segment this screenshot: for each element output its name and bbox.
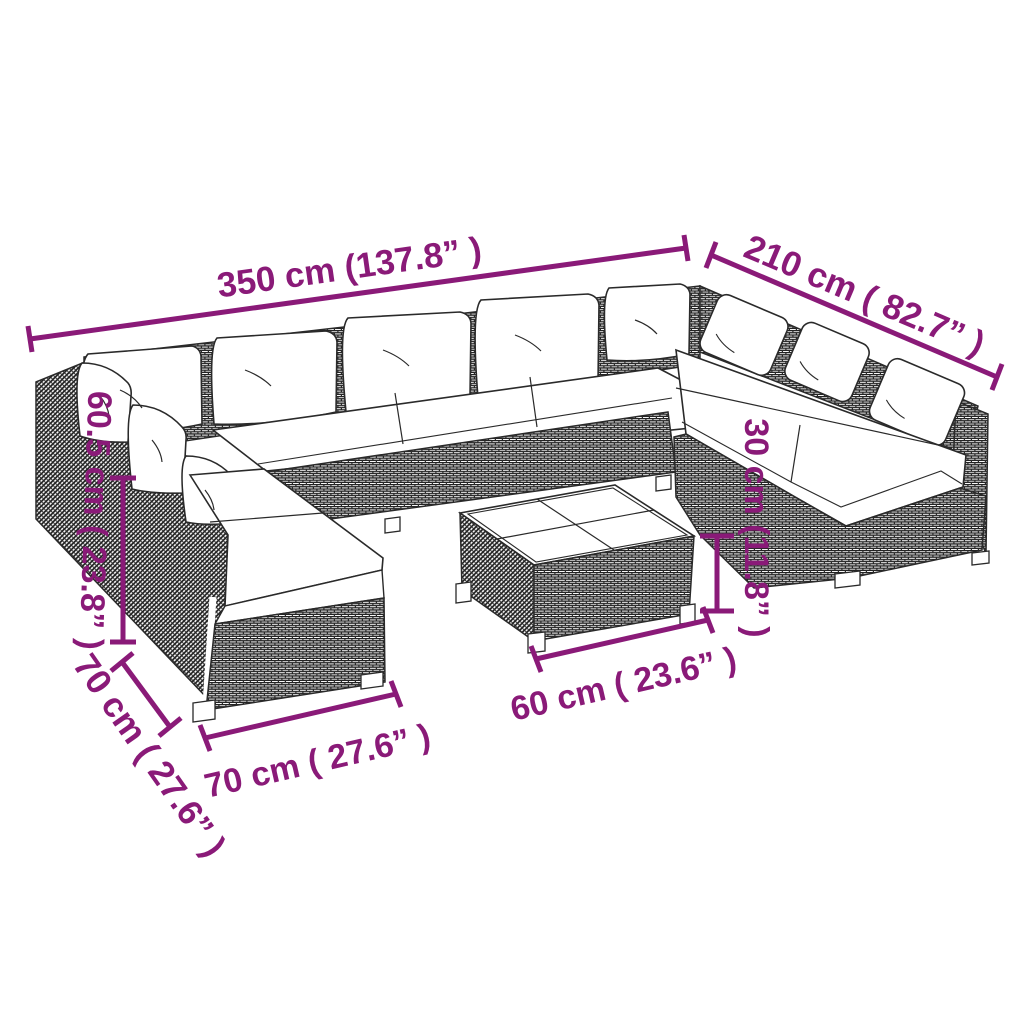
svg-text:30 cm (11.8” ): 30 cm (11.8” ) xyxy=(737,418,775,637)
